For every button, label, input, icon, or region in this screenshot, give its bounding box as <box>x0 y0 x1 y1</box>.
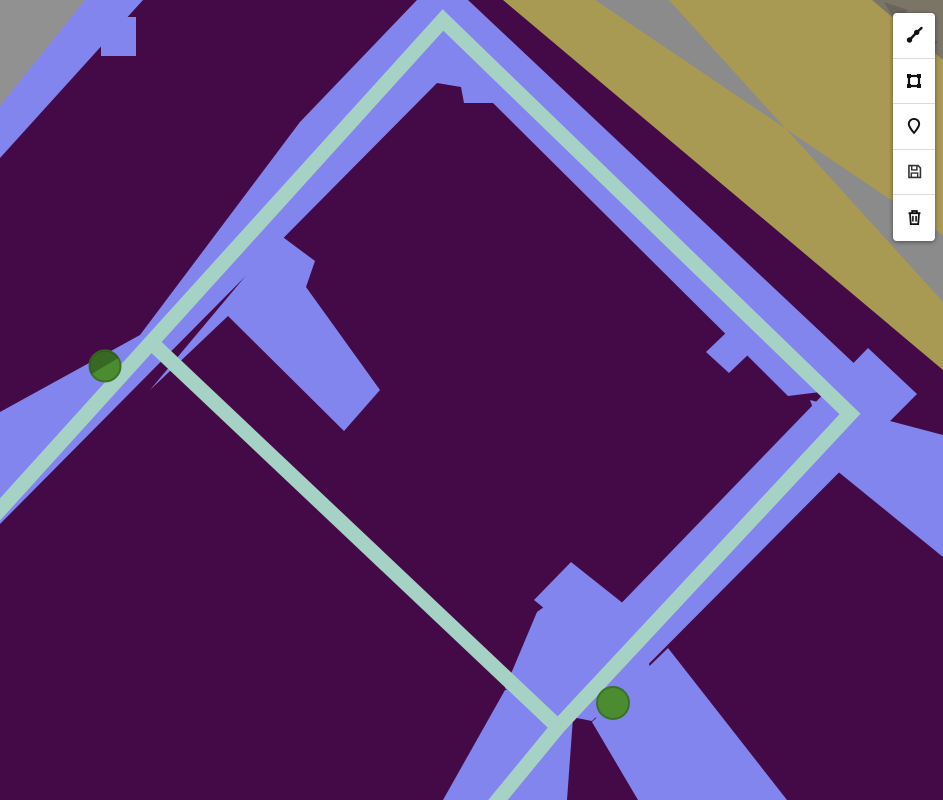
marker-icon <box>904 116 924 136</box>
delete-button[interactable] <box>893 195 935 241</box>
map-stage[interactable] <box>0 0 943 800</box>
road-northwest-spur <box>101 17 136 56</box>
polyline-icon <box>904 25 924 45</box>
rectangle-icon <box>904 71 924 91</box>
draw-polyline-button[interactable] <box>893 13 935 59</box>
draw-rectangle-button[interactable] <box>893 59 935 105</box>
save-button[interactable] <box>893 150 935 196</box>
draw-marker-button[interactable] <box>893 104 935 150</box>
draw-toolbar <box>893 13 935 241</box>
save-icon <box>905 162 924 181</box>
map-canvas[interactable] <box>0 0 943 800</box>
waypoint-marker-south[interactable] <box>597 687 629 719</box>
trash-icon <box>905 208 924 227</box>
